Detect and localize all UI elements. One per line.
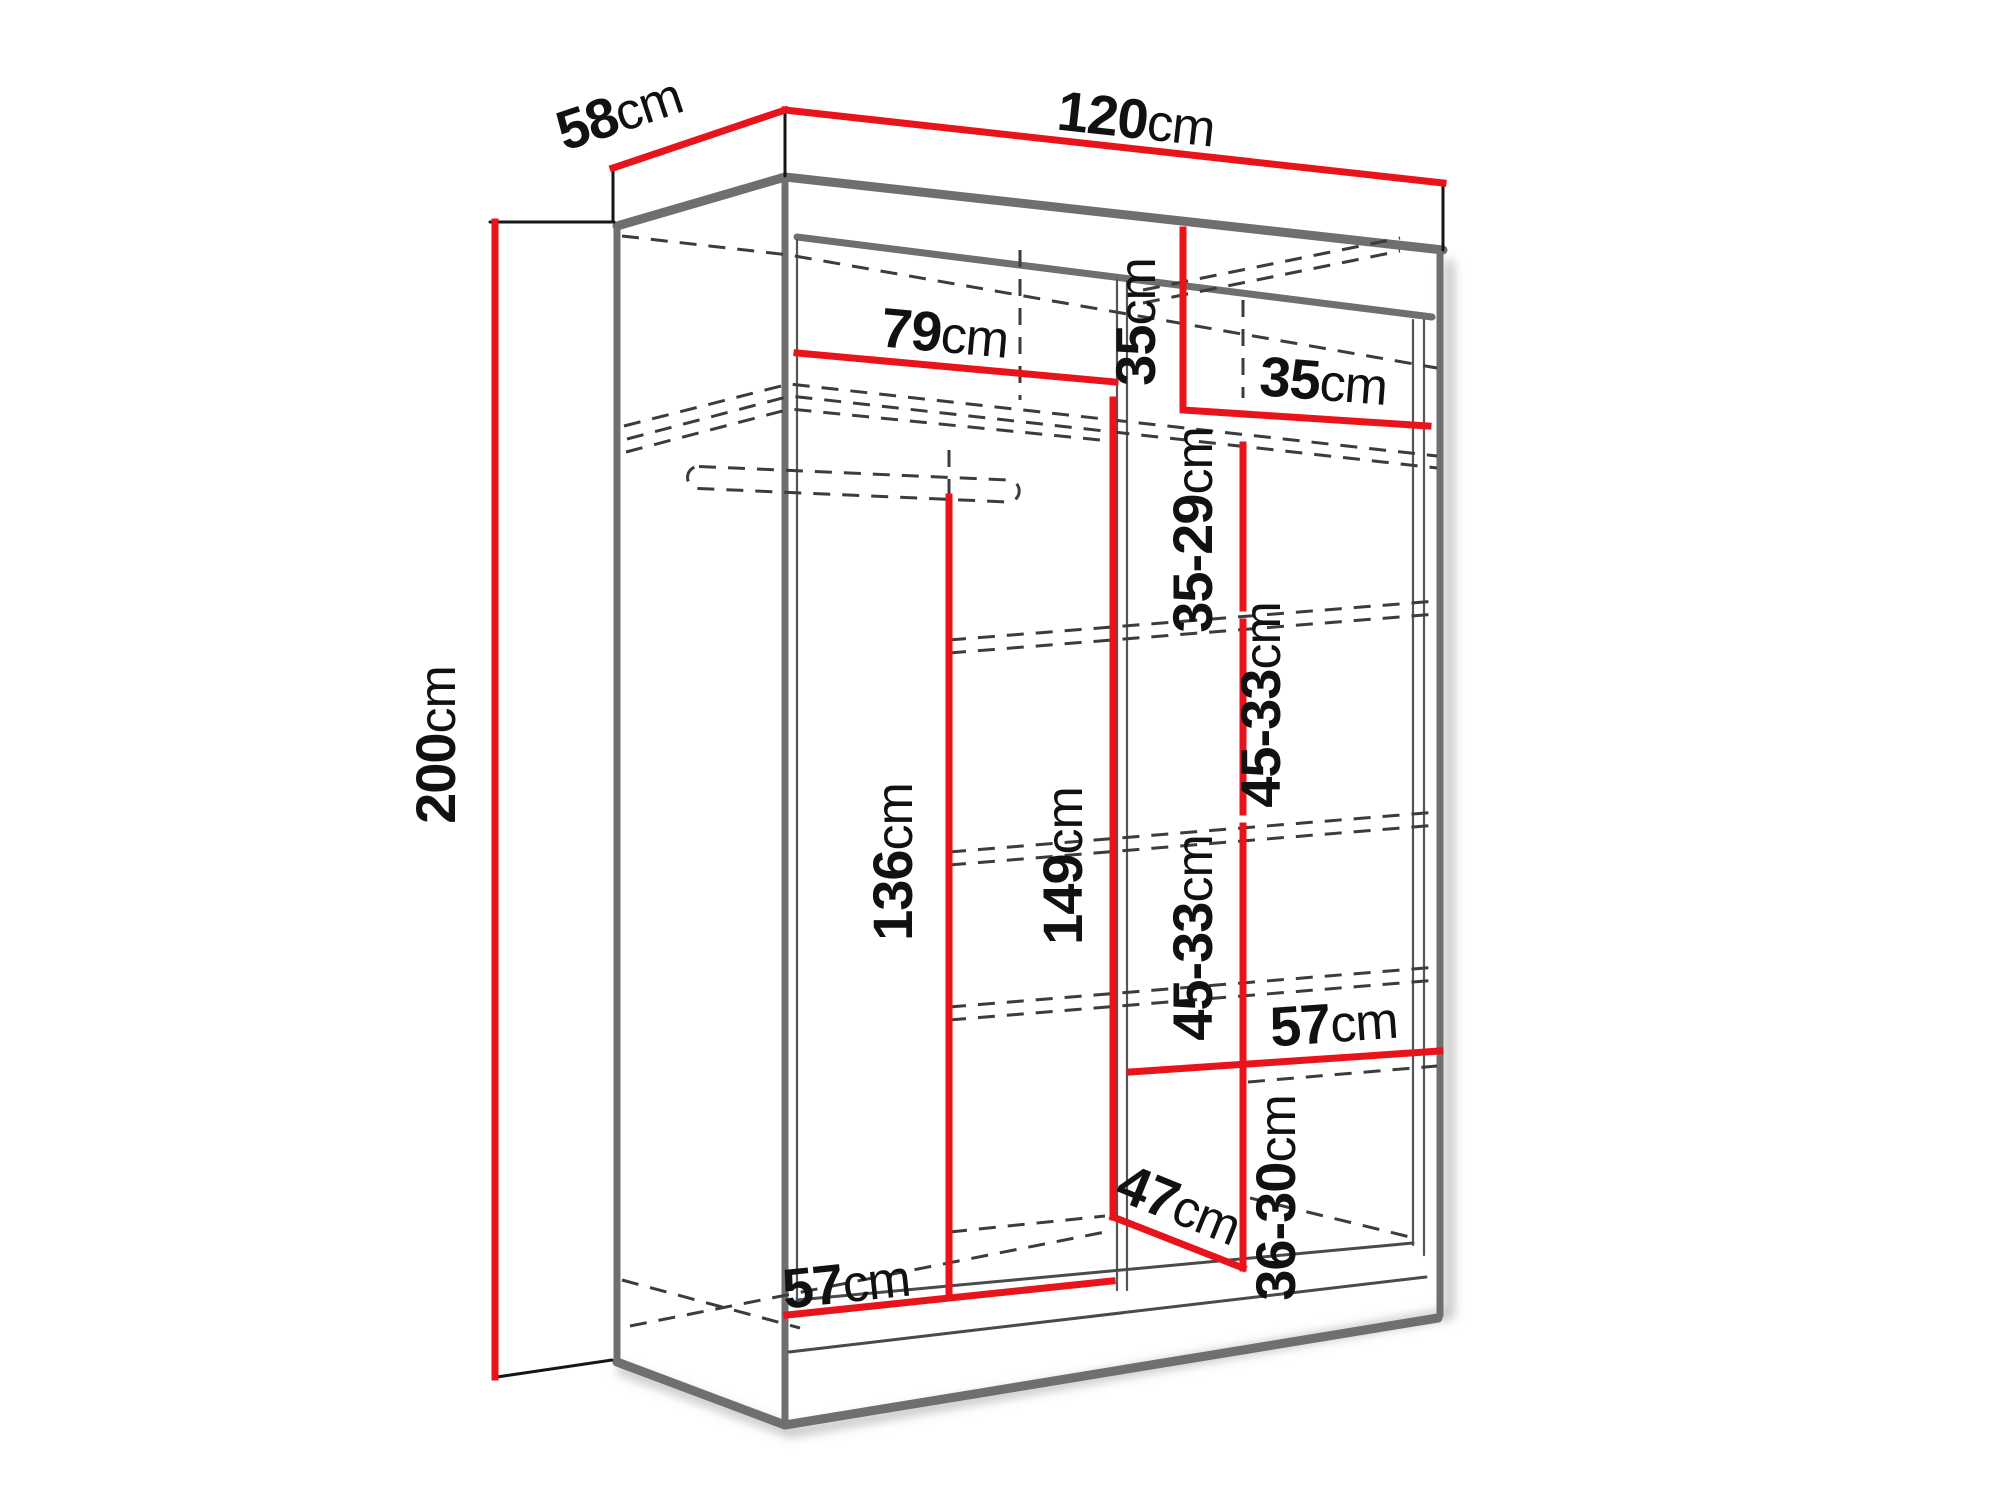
fixed-shelf-dashed-3 — [626, 409, 1100, 452]
dim-label-shelf-gap-1: 35-29cm — [1161, 427, 1224, 633]
dim-label-shelf-gap-2: 45-33cm — [1229, 602, 1292, 808]
floor-dashed-1 — [622, 1280, 800, 1328]
top-left-depth-edge — [617, 177, 785, 226]
dim-label-shelf-gap-3: 45-33cm — [1161, 835, 1224, 1041]
bottom-left-depth-edge — [617, 1362, 785, 1425]
shelf-d-dashed — [1248, 1066, 1437, 1082]
dim-label-bottom-width: 57cm — [779, 1245, 913, 1321]
bottom-front-edge — [785, 1318, 1438, 1425]
dim-label-shelf-depth-right: 57cm — [1268, 987, 1400, 1059]
dim-label-left-section-width: 79cm — [878, 295, 1011, 369]
dim-label-height-left: 200cm — [404, 666, 467, 824]
dim-label-divider-height: 149cm — [1031, 787, 1094, 945]
floor-dashed-3 — [950, 1216, 1105, 1232]
extension-200-bottom — [497, 1360, 612, 1377]
dim-label-shelf-gap-4: 36-30cm — [1244, 1095, 1307, 1301]
top-front-edge — [785, 177, 1443, 250]
dim-label-width-top: 120cm — [1054, 79, 1218, 159]
dim-label-top-cubby-height: 35cm — [1104, 258, 1167, 386]
hanging-rail-dashed — [687, 466, 1020, 502]
wardrobe-dimension-diagram: 58cm 120cm 200cm 79cm 35cm 35cm 35-29cm … — [0, 0, 2000, 1500]
dim-label-hanging-height: 136cm — [861, 783, 924, 941]
diagram-canvas: 58cm 120cm 200cm 79cm 35cm 35cm 35-29cm … — [0, 0, 2000, 1500]
